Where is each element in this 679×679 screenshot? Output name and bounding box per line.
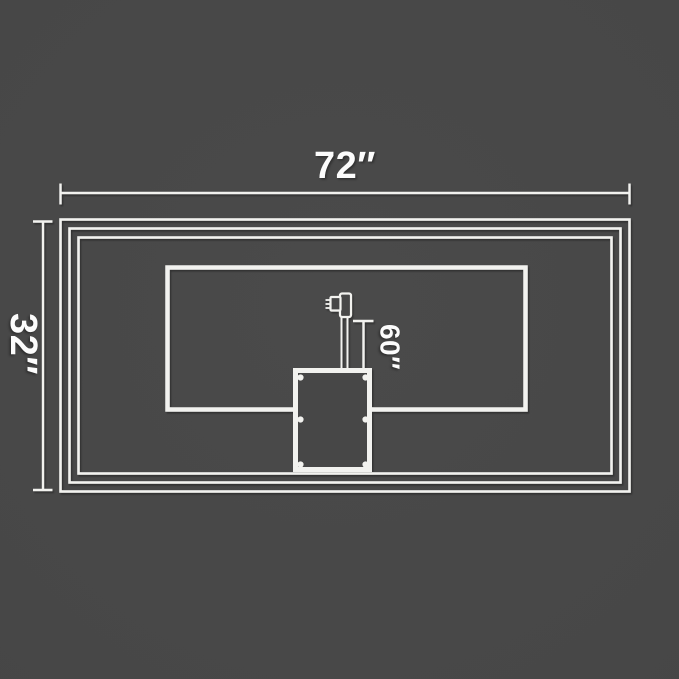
height-dimension-label: 32″ bbox=[3, 282, 43, 406]
cord-dimension-line bbox=[353, 321, 374, 369]
width-dimension-label: 72″ bbox=[275, 147, 415, 185]
power-plug-icon bbox=[326, 294, 352, 318]
dimension-diagram bbox=[0, 0, 679, 679]
cord-length-label: 60″ bbox=[375, 297, 405, 398]
junction-box bbox=[296, 371, 370, 470]
diagram-canvas: 72″ 32″ 60″ bbox=[0, 0, 679, 679]
power-cord bbox=[342, 315, 348, 370]
